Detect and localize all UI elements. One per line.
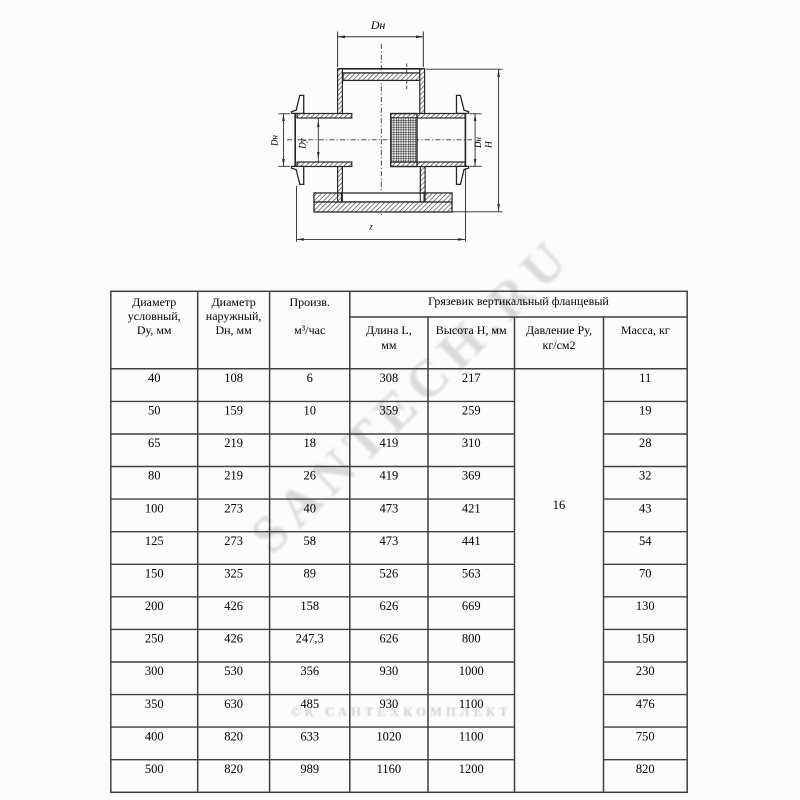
svg-text:530: 530 — [224, 664, 243, 678]
svg-text:кг/см2: кг/см2 — [542, 338, 575, 352]
svg-text:54: 54 — [639, 534, 652, 548]
svg-text:217: 217 — [462, 371, 481, 385]
svg-text:Dу: Dу — [298, 138, 308, 150]
svg-text:356: 356 — [300, 664, 319, 678]
svg-text:441: 441 — [462, 534, 481, 548]
svg-text:230: 230 — [636, 664, 655, 678]
svg-text:750: 750 — [636, 729, 655, 743]
svg-text:Произв.: Произв. — [289, 295, 330, 309]
svg-text:273: 273 — [224, 501, 243, 515]
svg-text:100: 100 — [145, 501, 164, 515]
svg-text:1160: 1160 — [377, 762, 402, 776]
svg-text:32: 32 — [639, 469, 652, 483]
svg-text:473: 473 — [380, 534, 399, 548]
svg-text:369: 369 — [462, 469, 481, 483]
svg-text:50: 50 — [148, 404, 161, 418]
svg-text:473: 473 — [380, 501, 399, 515]
svg-text:65: 65 — [148, 436, 161, 450]
svg-text:Масса, кг: Масса, кг — [621, 323, 670, 337]
svg-text:159: 159 — [224, 404, 243, 418]
svg-text:633: 633 — [300, 729, 319, 743]
svg-text:500: 500 — [145, 762, 164, 776]
svg-text:Грязевик вертикальный фланцевы: Грязевик вертикальный фланцевый — [428, 294, 609, 308]
svg-text:1100: 1100 — [459, 697, 484, 711]
svg-text:40: 40 — [148, 371, 161, 385]
svg-text:58: 58 — [303, 534, 316, 548]
svg-text:930: 930 — [380, 697, 399, 711]
svg-text:Dн: Dн — [473, 136, 483, 148]
svg-text:150: 150 — [636, 632, 655, 646]
svg-text:150: 150 — [145, 567, 164, 581]
svg-text:6: 6 — [307, 371, 313, 385]
svg-text:1020: 1020 — [376, 729, 401, 743]
svg-text:125: 125 — [145, 534, 164, 548]
svg-text:43: 43 — [639, 501, 652, 515]
svg-text:526: 526 — [380, 567, 399, 581]
svg-text:325: 325 — [224, 567, 243, 581]
svg-text:669: 669 — [462, 599, 481, 613]
svg-text:400: 400 — [145, 729, 164, 743]
svg-text:Dу, мм: Dу, мм — [137, 323, 172, 337]
svg-text:Диаметр: Диаметр — [132, 295, 176, 309]
svg-text:26: 26 — [303, 469, 316, 483]
svg-text:19: 19 — [639, 404, 652, 418]
svg-text:989: 989 — [300, 762, 319, 776]
svg-text:426: 426 — [224, 599, 243, 613]
svg-text:419: 419 — [380, 436, 399, 450]
svg-text:350: 350 — [145, 697, 164, 711]
svg-text:Dн: Dн — [370, 18, 386, 32]
svg-text:условный,: условный, — [128, 309, 181, 323]
svg-text:10: 10 — [303, 404, 316, 418]
svg-text:Длина L,: Длина L, — [366, 323, 412, 337]
svg-text:Высота Н, мм: Высота Н, мм — [436, 323, 507, 337]
svg-text:630: 630 — [224, 697, 243, 711]
svg-text:SANTECH.RU: SANTECH.RU — [240, 226, 583, 564]
svg-text:300: 300 — [145, 664, 164, 678]
svg-text:273: 273 — [224, 534, 243, 548]
svg-text:H: H — [485, 140, 495, 149]
svg-text:130: 130 — [636, 599, 655, 613]
svg-text:310: 310 — [462, 436, 481, 450]
svg-text:16: 16 — [553, 498, 566, 512]
svg-text:1200: 1200 — [459, 762, 484, 776]
svg-text:250: 250 — [145, 632, 164, 646]
svg-text:426: 426 — [224, 632, 243, 646]
svg-text:Давление Ру,: Давление Ру, — [526, 323, 592, 337]
svg-text:11: 11 — [639, 371, 651, 385]
svg-text:563: 563 — [462, 567, 481, 581]
svg-text:930: 930 — [380, 664, 399, 678]
svg-text:820: 820 — [224, 762, 243, 776]
svg-text:м³/час: м³/час — [294, 323, 325, 337]
svg-text:70: 70 — [639, 567, 652, 581]
svg-text:800: 800 — [462, 632, 481, 646]
svg-text:18: 18 — [303, 436, 316, 450]
svg-text:247,3: 247,3 — [296, 632, 324, 646]
svg-text:1100: 1100 — [459, 729, 484, 743]
svg-text:158: 158 — [300, 599, 319, 613]
svg-text:z: z — [368, 222, 373, 232]
svg-text:308: 308 — [380, 371, 399, 385]
svg-text:476: 476 — [636, 697, 655, 711]
svg-text:108: 108 — [224, 371, 243, 385]
svg-text:Dн: Dн — [270, 134, 280, 146]
svg-text:Dн, мм: Dн, мм — [215, 323, 252, 337]
svg-text:485: 485 — [300, 697, 319, 711]
svg-text:наружный,: наружный, — [206, 309, 262, 323]
svg-text:89: 89 — [303, 567, 316, 581]
svg-text:820: 820 — [636, 762, 655, 776]
svg-text:419: 419 — [380, 469, 399, 483]
svg-text:421: 421 — [462, 501, 481, 515]
svg-text:28: 28 — [639, 436, 652, 450]
svg-text:219: 219 — [224, 436, 243, 450]
svg-text:626: 626 — [380, 632, 399, 646]
svg-text:359: 359 — [380, 404, 399, 418]
svg-text:820: 820 — [224, 729, 243, 743]
svg-text:219: 219 — [224, 469, 243, 483]
svg-text:80: 80 — [148, 469, 161, 483]
svg-text:Диаметр: Диаметр — [211, 295, 255, 309]
svg-text:1000: 1000 — [459, 664, 484, 678]
svg-text:40: 40 — [303, 501, 316, 515]
svg-text:200: 200 — [145, 599, 164, 613]
svg-text:мм: мм — [381, 338, 397, 352]
svg-text:626: 626 — [380, 599, 399, 613]
svg-text:259: 259 — [462, 404, 481, 418]
